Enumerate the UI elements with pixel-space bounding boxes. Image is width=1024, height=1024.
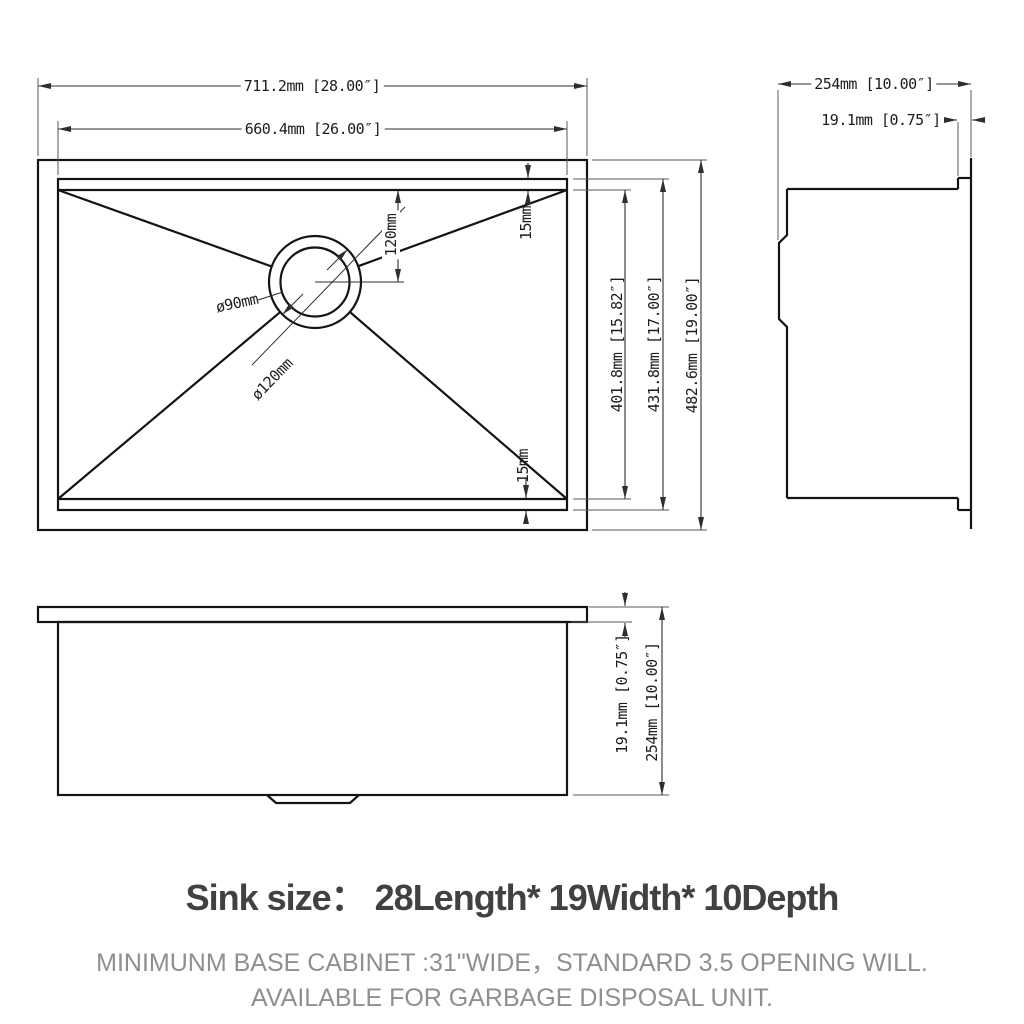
dim-label-side-rim-thickness: 19.1mm [0.75″] bbox=[821, 111, 940, 129]
dim-label-corner-top: 15mm bbox=[517, 206, 535, 240]
dim-label-front-depth: 254mm [10.00″] bbox=[643, 642, 661, 761]
dim-label-corner-bottom: 15mm bbox=[514, 449, 532, 483]
dim-label-drain-offset: 120mm bbox=[382, 211, 400, 260]
side-view-outline bbox=[779, 158, 971, 529]
top-view-outline bbox=[38, 160, 587, 530]
sink-dimension-diagram: 711.2mm [28.00″] 660.4mm [26.00″] 401.8m… bbox=[0, 0, 1024, 1024]
sink-size-title: Sink size： 28Length* 19Width* 10Depth bbox=[0, 869, 1024, 921]
cabinet-note-line1: MINIMUNM BASE CABINET :31"WIDE，STANDARD … bbox=[0, 943, 1024, 979]
dim-label-top-width-outer: 711.2mm [28.00″] bbox=[241, 77, 384, 95]
dim-label-top-width-inner: 660.4mm [26.00″] bbox=[242, 120, 385, 138]
top-view-extension-lines bbox=[38, 78, 707, 530]
cabinet-note-line2: AVAILABLE FOR GARBAGE DISPOSAL UNIT. bbox=[0, 984, 1024, 1013]
dim-label-top-height-inner: 431.8mm [17.00″] bbox=[645, 276, 663, 413]
top-view-dimension-lines bbox=[38, 86, 701, 530]
front-view-outline bbox=[38, 607, 587, 803]
dim-label-front-rim-thickness: 19.1mm [0.75″] bbox=[613, 634, 631, 753]
dim-label-top-height-outer: 482.6mm [19.00″] bbox=[683, 277, 701, 414]
dim-label-side-depth: 254mm [10.00″] bbox=[811, 75, 936, 93]
dim-label-bowl-bottom-length: 401.8mm [15.82″] bbox=[608, 276, 626, 413]
